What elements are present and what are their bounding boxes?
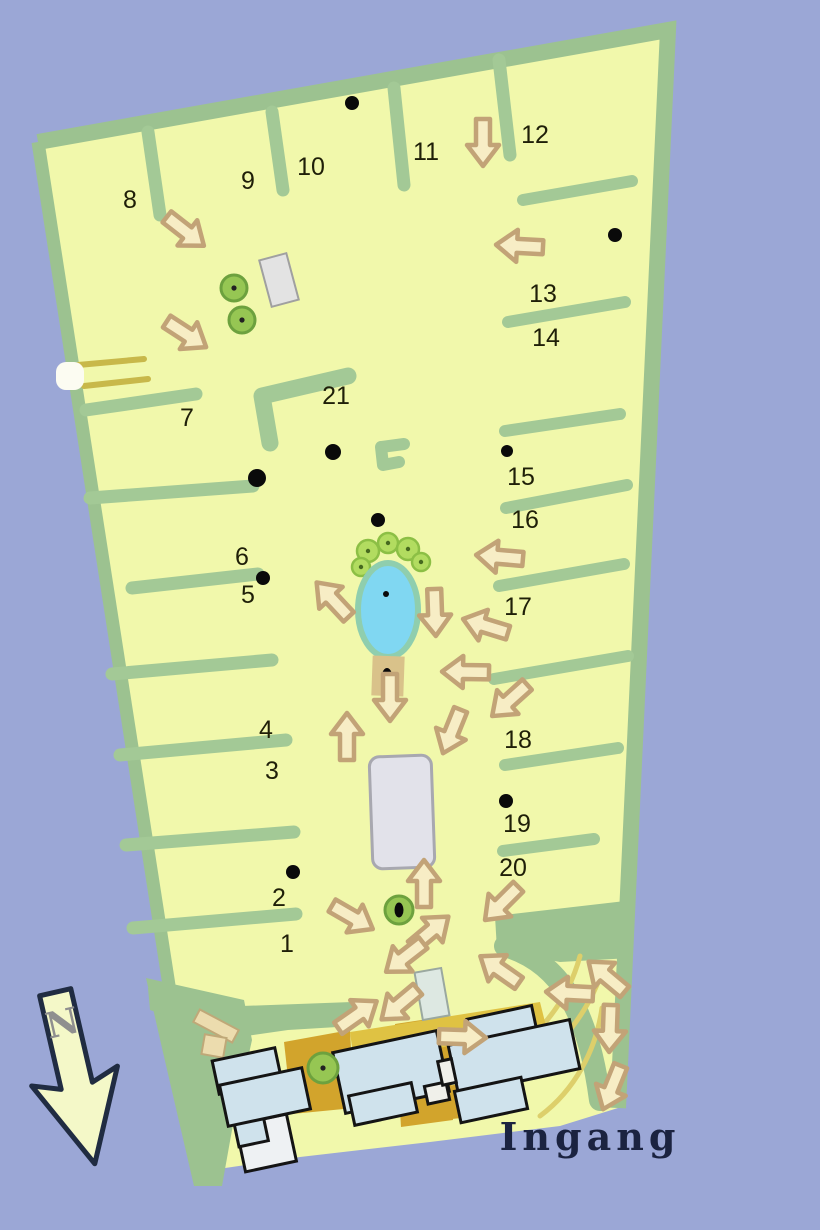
section-label: 7	[180, 404, 194, 432]
west-gate-bar	[56, 362, 84, 390]
bush-center	[386, 541, 390, 545]
marker-dot	[325, 444, 341, 460]
marker-dot	[345, 96, 359, 110]
tree-center	[320, 1065, 325, 1070]
section-label: 6	[235, 543, 249, 571]
section-label: 20	[499, 854, 527, 882]
marker-dot	[256, 571, 270, 585]
marker-dot	[248, 469, 266, 487]
marker-dot	[499, 794, 513, 808]
site-map: 123456789101112131415161718192021 N Inga…	[0, 0, 820, 1230]
tree-center	[231, 285, 236, 290]
map-page: 123456789101112131415161718192021 N Inga…	[0, 0, 820, 1230]
building	[438, 1059, 457, 1085]
marker-dot	[501, 445, 513, 457]
section-label: 11	[413, 138, 439, 166]
tree-center	[239, 317, 244, 322]
section-label: 9	[241, 167, 255, 195]
section-label: 4	[259, 716, 273, 744]
section-label: 1	[280, 930, 294, 958]
section-label: 15	[507, 463, 535, 491]
section-label: 12	[521, 121, 549, 149]
section-label: 8	[123, 186, 137, 214]
bush-center	[406, 547, 410, 551]
section-label: 3	[265, 757, 279, 785]
bush-center	[419, 560, 423, 564]
section-label: 5	[241, 581, 255, 609]
section-label: 18	[504, 726, 532, 754]
section-label: 17	[504, 593, 532, 621]
shed	[201, 1034, 226, 1058]
marker-dot	[395, 903, 404, 918]
section-label: 21	[322, 382, 350, 410]
section-label: 2	[272, 884, 286, 912]
marker-dot	[608, 228, 622, 242]
marker-dot	[383, 591, 389, 597]
section-label: 10	[297, 153, 325, 181]
central-monument	[369, 755, 435, 869]
section-label: 14	[532, 324, 560, 352]
section-label: 19	[503, 810, 531, 838]
section-label: 16	[511, 506, 539, 534]
bush-center	[366, 549, 370, 553]
section-label: 13	[529, 280, 557, 308]
marker-dot	[286, 865, 300, 879]
entrance-label: Ingang	[500, 1114, 681, 1159]
pond	[358, 563, 418, 657]
bush-center	[359, 565, 363, 569]
marker-dot	[371, 513, 385, 527]
